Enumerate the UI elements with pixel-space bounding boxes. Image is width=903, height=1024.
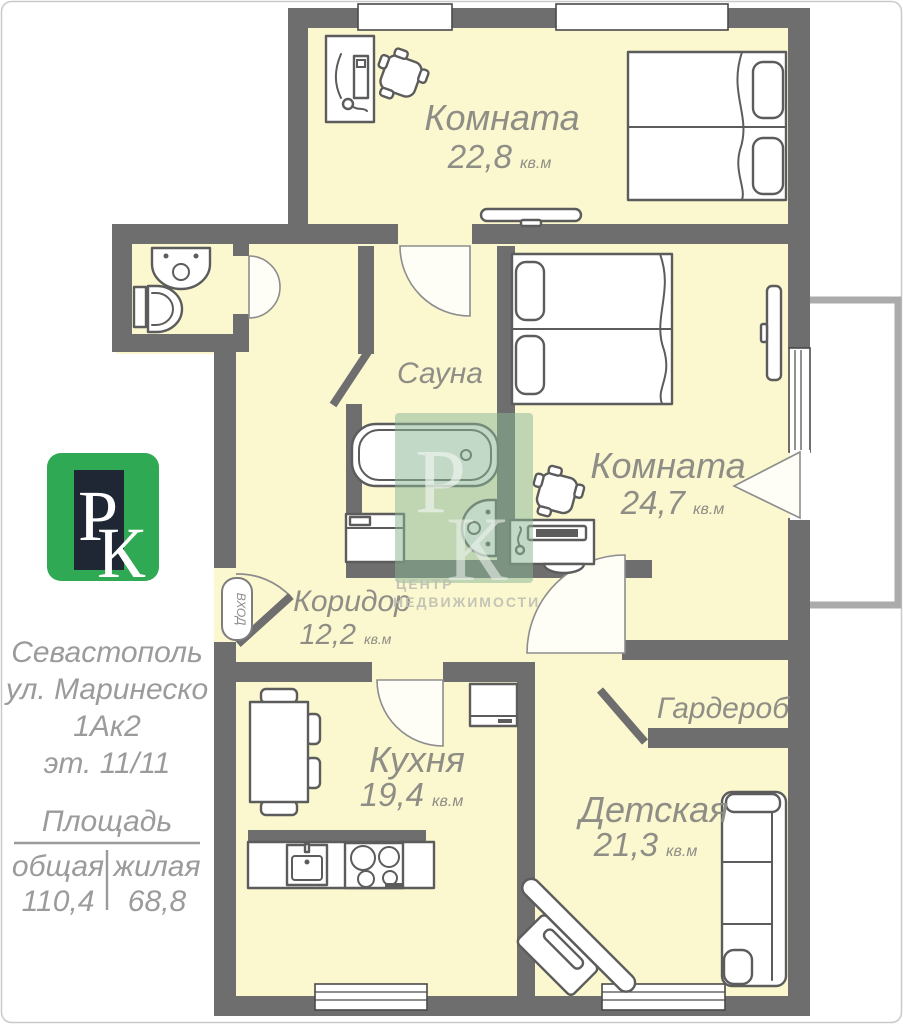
balcony (806, 300, 898, 605)
svg-text:21,3: 21,3 (593, 826, 659, 863)
window-right (789, 348, 810, 452)
address-floor: эт. 11/11 (44, 747, 171, 780)
address-building: 1Ак2 (73, 710, 141, 743)
washbasin-icon (152, 248, 210, 289)
desk-icon (326, 36, 374, 122)
watermark-line2: НЕДВИЖИМОСТИ (393, 594, 540, 610)
svg-text:22,8: 22,8 (447, 138, 513, 175)
fridge-icon (470, 684, 517, 726)
window-top-left (358, 4, 452, 30)
svg-text:Комната: Комната (590, 445, 745, 486)
address-city: Севастополь (11, 636, 203, 669)
floor-plan-page: ВХОД (0, 0, 903, 1024)
area-title: Площадь (42, 805, 172, 838)
svg-text:24,7: 24,7 (620, 484, 687, 521)
kitchen-counter (248, 842, 434, 888)
watermark-line1: ЦЕНТР (396, 576, 454, 592)
svg-text:кв.м: кв.м (520, 155, 551, 172)
stove-icon (345, 843, 403, 888)
agency-logo: Р К (47, 453, 159, 593)
svg-text:кв.м: кв.м (693, 501, 724, 518)
area-col1-value: 110,4 (22, 885, 95, 918)
area-col2-value: 68,8 (128, 885, 187, 918)
room-label-sauna: Сауна (397, 357, 483, 390)
toilet-icon (134, 286, 182, 332)
svg-text:Кухня: Кухня (369, 739, 465, 780)
room-label-wardrobe: Гардероб (657, 692, 790, 725)
double-bed-icon (512, 254, 672, 404)
svg-text:Детская: Детская (576, 789, 729, 830)
room-label-kitchen: Кухня 19,4 кв.м (360, 739, 465, 813)
watermark-letter-k: К (446, 498, 508, 600)
window-kitchen (315, 984, 427, 1010)
watermark: Р К ЦЕНТР НЕДВИЖИМОСТИ (393, 413, 540, 610)
svg-text:Сауна: Сауна (397, 357, 483, 390)
window-top-right (556, 4, 728, 30)
address-street: ул. Маринеско (4, 673, 208, 706)
kitchen-backsplash (248, 830, 426, 842)
svg-text:19,4: 19,4 (360, 776, 424, 813)
kitchen-sink-icon (287, 844, 327, 885)
double-bed-icon (628, 52, 786, 200)
logo-letter-k: К (97, 513, 146, 593)
sofa-icon (722, 792, 786, 986)
svg-text:кв.м: кв.м (666, 843, 697, 860)
entrance-label: ВХОД (234, 593, 248, 626)
area-col1-label: общая (12, 850, 104, 883)
svg-text:кв.м: кв.м (364, 631, 392, 647)
area-col2-label: жилая (112, 850, 201, 883)
svg-text:кв.м: кв.м (432, 793, 463, 810)
svg-text:Гардероб: Гардероб (657, 692, 790, 725)
svg-text:Комната: Комната (424, 97, 579, 138)
svg-text:12,2: 12,2 (300, 619, 356, 651)
